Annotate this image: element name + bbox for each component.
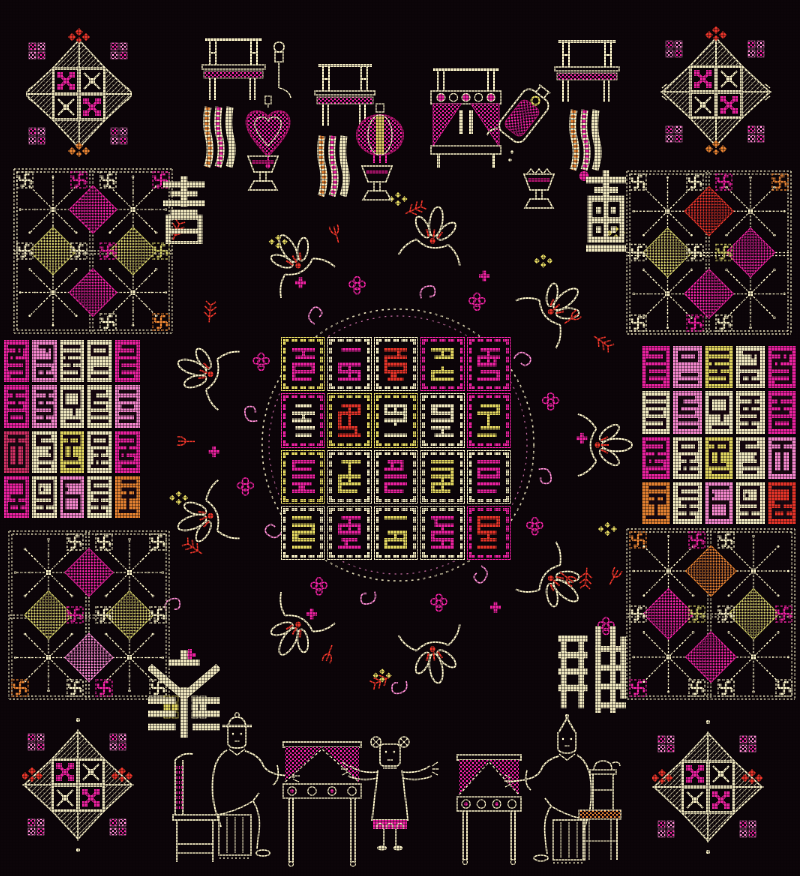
seal-block-character: 草 — [115, 431, 140, 473]
seal-block-character: 書 — [87, 431, 112, 473]
proverb-character-cell: 正 — [467, 393, 511, 447]
seal-block-character: 書 — [673, 437, 701, 479]
proverb-character-cell: 少 — [327, 450, 371, 504]
seal-block-character: 難 — [768, 391, 796, 433]
proverb-character-cell: 夫 — [327, 337, 371, 391]
seal-block-character: 馬 — [32, 476, 57, 518]
seal-block-character: 青 — [673, 391, 701, 433]
seal-block-character: 過 — [673, 346, 701, 388]
seal-character-hua-painting — [586, 170, 626, 252]
seal-block-character: 吉 — [736, 346, 764, 388]
seal-block-character: 上 — [768, 346, 796, 388]
seal-block-character: 間 — [115, 476, 140, 518]
seal-block-character: 過 — [87, 340, 112, 382]
seal-block-character: 前 — [60, 476, 85, 518]
corner-star-motif-top-left — [26, 28, 132, 160]
seal-block-character: 間 — [642, 482, 670, 524]
proverb-character-cell: 天 — [467, 450, 511, 504]
proverb-character-cell: 心 — [281, 450, 325, 504]
proverb-character-cell: 自 — [374, 337, 418, 391]
seal-block-character: 寓 — [705, 437, 733, 479]
proverb-character-cell: 國 — [467, 337, 511, 391]
seal-block-character: 吉 — [32, 340, 57, 382]
seal-character-qin-zither — [148, 650, 220, 738]
proverb-character-cell: 安 — [374, 393, 418, 447]
proverb-character-cell: 父 — [281, 393, 325, 447]
proverb-character-cell: 孝 — [281, 337, 325, 391]
seal-block-character: 肖 — [115, 340, 140, 382]
proverb-character-cell: 星 — [467, 506, 511, 560]
seal-block-character: 再 — [705, 346, 733, 388]
seal-script-grid-right: 肖過再吉上田青未釣難草書寓詩迫間示前馬回 — [642, 346, 796, 524]
corner-star-motif-top-right — [660, 26, 772, 158]
seal-block-character: 迫 — [4, 431, 29, 473]
snowflake-panel-right-upper — [626, 170, 792, 335]
proverb-character-cell: 子 — [327, 506, 371, 560]
seal-block-character: 未 — [705, 391, 733, 433]
seal-block-character: 草 — [642, 437, 670, 479]
proverb-character-cell: 妻 — [374, 450, 418, 504]
snowflake-panel-right-lower — [626, 528, 796, 700]
seal-block-character: 未 — [60, 385, 85, 427]
seal-block-character: 寓 — [60, 431, 85, 473]
seal-character-shu-calligraphy — [163, 176, 205, 244]
altar-offering-scene — [172, 24, 624, 216]
proverb-character-grid: 孝夫自順國父禍安官正心少妻清天寬子賢民星 — [281, 337, 511, 560]
seal-block-character: 釣 — [736, 391, 764, 433]
seal-block-character: 上 — [4, 340, 29, 382]
seal-block-character: 難 — [4, 385, 29, 427]
seal-block-character: 示 — [87, 476, 112, 518]
seal-block-character: 回 — [4, 476, 29, 518]
proverb-character-cell: 寬 — [281, 506, 325, 560]
proverb-character-cell: 賢 — [374, 506, 418, 560]
corner-star-motif-bottom-left — [22, 716, 134, 854]
seal-block-character: 青 — [87, 385, 112, 427]
seal-block-character: 前 — [705, 482, 733, 524]
snowflake-panel-left-lower — [8, 530, 170, 700]
seal-block-character: 回 — [768, 482, 796, 524]
seal-block-character: 馬 — [736, 482, 764, 524]
seal-block-character: 再 — [60, 340, 85, 382]
snowflake-panel-left-upper — [13, 168, 173, 334]
seal-block-character: 示 — [673, 482, 701, 524]
seal-block-character: 田 — [115, 385, 140, 427]
seal-block-character: 詩 — [32, 431, 57, 473]
proverb-character-cell: 順 — [420, 337, 464, 391]
seal-character-qi-chess — [558, 626, 626, 720]
seal-block-character: 迫 — [768, 437, 796, 479]
embroidery-artwork: 上吉再過肖難釣未青田迫詩寓書草回馬前示間 肖過再吉上田青未釣難草書寓詩迫間示前馬… — [0, 0, 800, 876]
proverb-character-cell: 清 — [420, 450, 464, 504]
seal-block-character: 肖 — [642, 346, 670, 388]
seal-script-grid-left: 上吉再過肖難釣未青田迫詩寓書草回馬前示間 — [4, 340, 140, 518]
seal-block-character: 詩 — [736, 437, 764, 479]
proverb-character-cell: 民 — [420, 506, 464, 560]
proverb-character-cell: 禍 — [327, 393, 371, 447]
seal-block-character: 釣 — [32, 385, 57, 427]
proverb-character-cell: 官 — [420, 393, 464, 447]
corner-star-motif-bottom-right — [652, 718, 764, 856]
seal-block-character: 田 — [642, 391, 670, 433]
